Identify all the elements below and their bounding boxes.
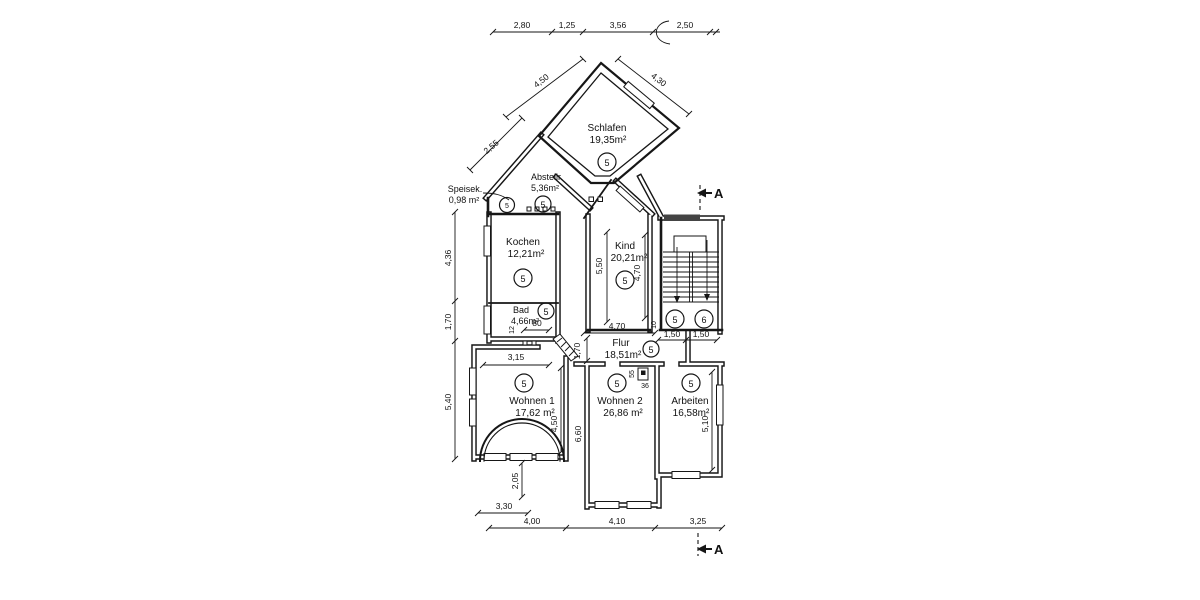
wohnen1-window-1 xyxy=(470,368,477,395)
dim-left-2: 1,70 xyxy=(443,313,453,330)
room-name-abstellr: Abstellr. xyxy=(531,172,563,182)
section-marker-top: A xyxy=(697,185,724,212)
dim-bottom-1: 4,00 xyxy=(524,516,541,526)
dim-diag-speisek: 2,55 xyxy=(482,137,501,155)
section-label-bottom: A xyxy=(714,542,724,557)
dim-left-3: 5,40 xyxy=(443,393,453,410)
dim-bay-depth: 2,05 xyxy=(510,472,520,489)
dim-wohnen2-small-h: 36 xyxy=(641,383,649,390)
zone-num-bad: 5 xyxy=(543,307,548,317)
dim-bay-width: 3,30 xyxy=(496,501,513,511)
bay-window-1 xyxy=(484,454,506,461)
wohnen1-window-2 xyxy=(470,399,477,426)
stair-entry-lintel xyxy=(664,215,700,222)
stair-landing xyxy=(674,236,706,252)
room-area-abstellr: 5,36m² xyxy=(531,183,559,193)
zone-num-kind: 5 xyxy=(622,276,627,286)
dim-stair-left: 1,50 xyxy=(664,329,681,339)
section-marker-bottom: A xyxy=(697,533,724,557)
arbeiten-window-right xyxy=(717,385,724,425)
room-name-arbeiten: Arbeiten xyxy=(671,396,708,407)
room-area-bad: 4,66m² xyxy=(511,316,539,326)
dim-wohnen2-small-v: 55 xyxy=(629,370,636,378)
dim-arc-symbol xyxy=(656,21,670,44)
room-name-kochen: Kochen xyxy=(506,237,540,248)
wohnen2-window-1 xyxy=(595,502,619,509)
zone-num-arbeiten: 5 xyxy=(688,379,693,389)
section-label-top: A xyxy=(714,186,724,201)
dim-top-4: 2,50 xyxy=(677,20,694,30)
dim-bottom-3: 3,25 xyxy=(690,516,707,526)
room-area-speisek: 0,98 m² xyxy=(449,195,480,205)
zone-num-speisek: 5 xyxy=(505,203,509,210)
floorplan-page: A A 2,80 1,25 3,56 2,50 4,36 1,70 5,40 4… xyxy=(0,0,1200,600)
room-area-flur: 18,51m² xyxy=(605,350,642,361)
dim-bad-door-off: 12 xyxy=(509,326,516,334)
room-area-kind: 20,21m² xyxy=(611,253,648,264)
dim-kind-width: 4,70 xyxy=(609,321,626,331)
dim-diag-right: 4,30 xyxy=(649,71,668,89)
floorplan-drawing: A A 2,80 1,25 3,56 2,50 4,36 1,70 5,40 4… xyxy=(0,0,1200,600)
dim-kind-height: 5,50 xyxy=(594,257,604,274)
zone-num-flur: 5 xyxy=(648,345,653,355)
zone-num-stair-left: 5 xyxy=(672,315,677,325)
zone-num-kochen: 5 xyxy=(520,274,525,284)
room-name-speisek: Speisek. xyxy=(448,184,483,194)
dim-wohnen1-width: 3,15 xyxy=(508,352,525,362)
room-area-kochen: 12,21m² xyxy=(508,249,545,260)
zone-num-schlafen: 5 xyxy=(604,158,609,168)
room-name-flur: Flur xyxy=(612,338,630,349)
room-name-kind: Kind xyxy=(615,241,635,252)
zone-num-wohnen2: 5 xyxy=(614,379,619,389)
room-area-wohnen1: 17,62 m² xyxy=(515,408,555,419)
dim-stair-right: 1,50 xyxy=(693,329,710,339)
kochen-window xyxy=(484,226,491,256)
zone-num-stair-right: 6 xyxy=(701,315,706,325)
dim-left-1: 4,36 xyxy=(443,249,453,266)
room-name-wohnen1: Wohnen 1 xyxy=(509,396,555,407)
dim-diag-left: 4,50 xyxy=(532,71,551,89)
staircase xyxy=(663,236,719,303)
dim-bottom-2: 4,10 xyxy=(609,516,626,526)
arbeiten-window-bottom xyxy=(672,472,700,479)
room-name-wohnen2: Wohnen 2 xyxy=(597,396,643,407)
dim-top-2: 1,25 xyxy=(559,20,576,30)
dim-wohnen2-height: 6,60 xyxy=(573,425,583,442)
room-area-wohnen2: 26,86 m² xyxy=(603,408,643,419)
zone-num-abstellr: 5 xyxy=(540,200,545,210)
dim-top-3: 3,56 xyxy=(610,20,627,30)
room-name-bad: Bad xyxy=(513,305,529,315)
dim-kind-small: 10 xyxy=(651,321,658,329)
dimension-labels: 2,80 1,25 3,56 2,50 4,36 1,70 5,40 4,00 … xyxy=(443,20,710,526)
dim-flur-height: 1,70 xyxy=(572,342,582,359)
wohnen2-window-2 xyxy=(627,502,651,509)
bay-window-3 xyxy=(536,454,558,461)
room-name-schlafen: Schlafen xyxy=(588,123,627,134)
bad-window xyxy=(484,306,491,334)
dim-top-1: 2,80 xyxy=(514,20,531,30)
bay-window-2 xyxy=(510,454,532,461)
zone-num-wohnen1: 5 xyxy=(521,379,526,389)
room-area-arbeiten: 16,58m² xyxy=(673,408,710,419)
room-area-schlafen: 19,35m² xyxy=(590,135,627,146)
schlafen-passage xyxy=(616,186,644,212)
